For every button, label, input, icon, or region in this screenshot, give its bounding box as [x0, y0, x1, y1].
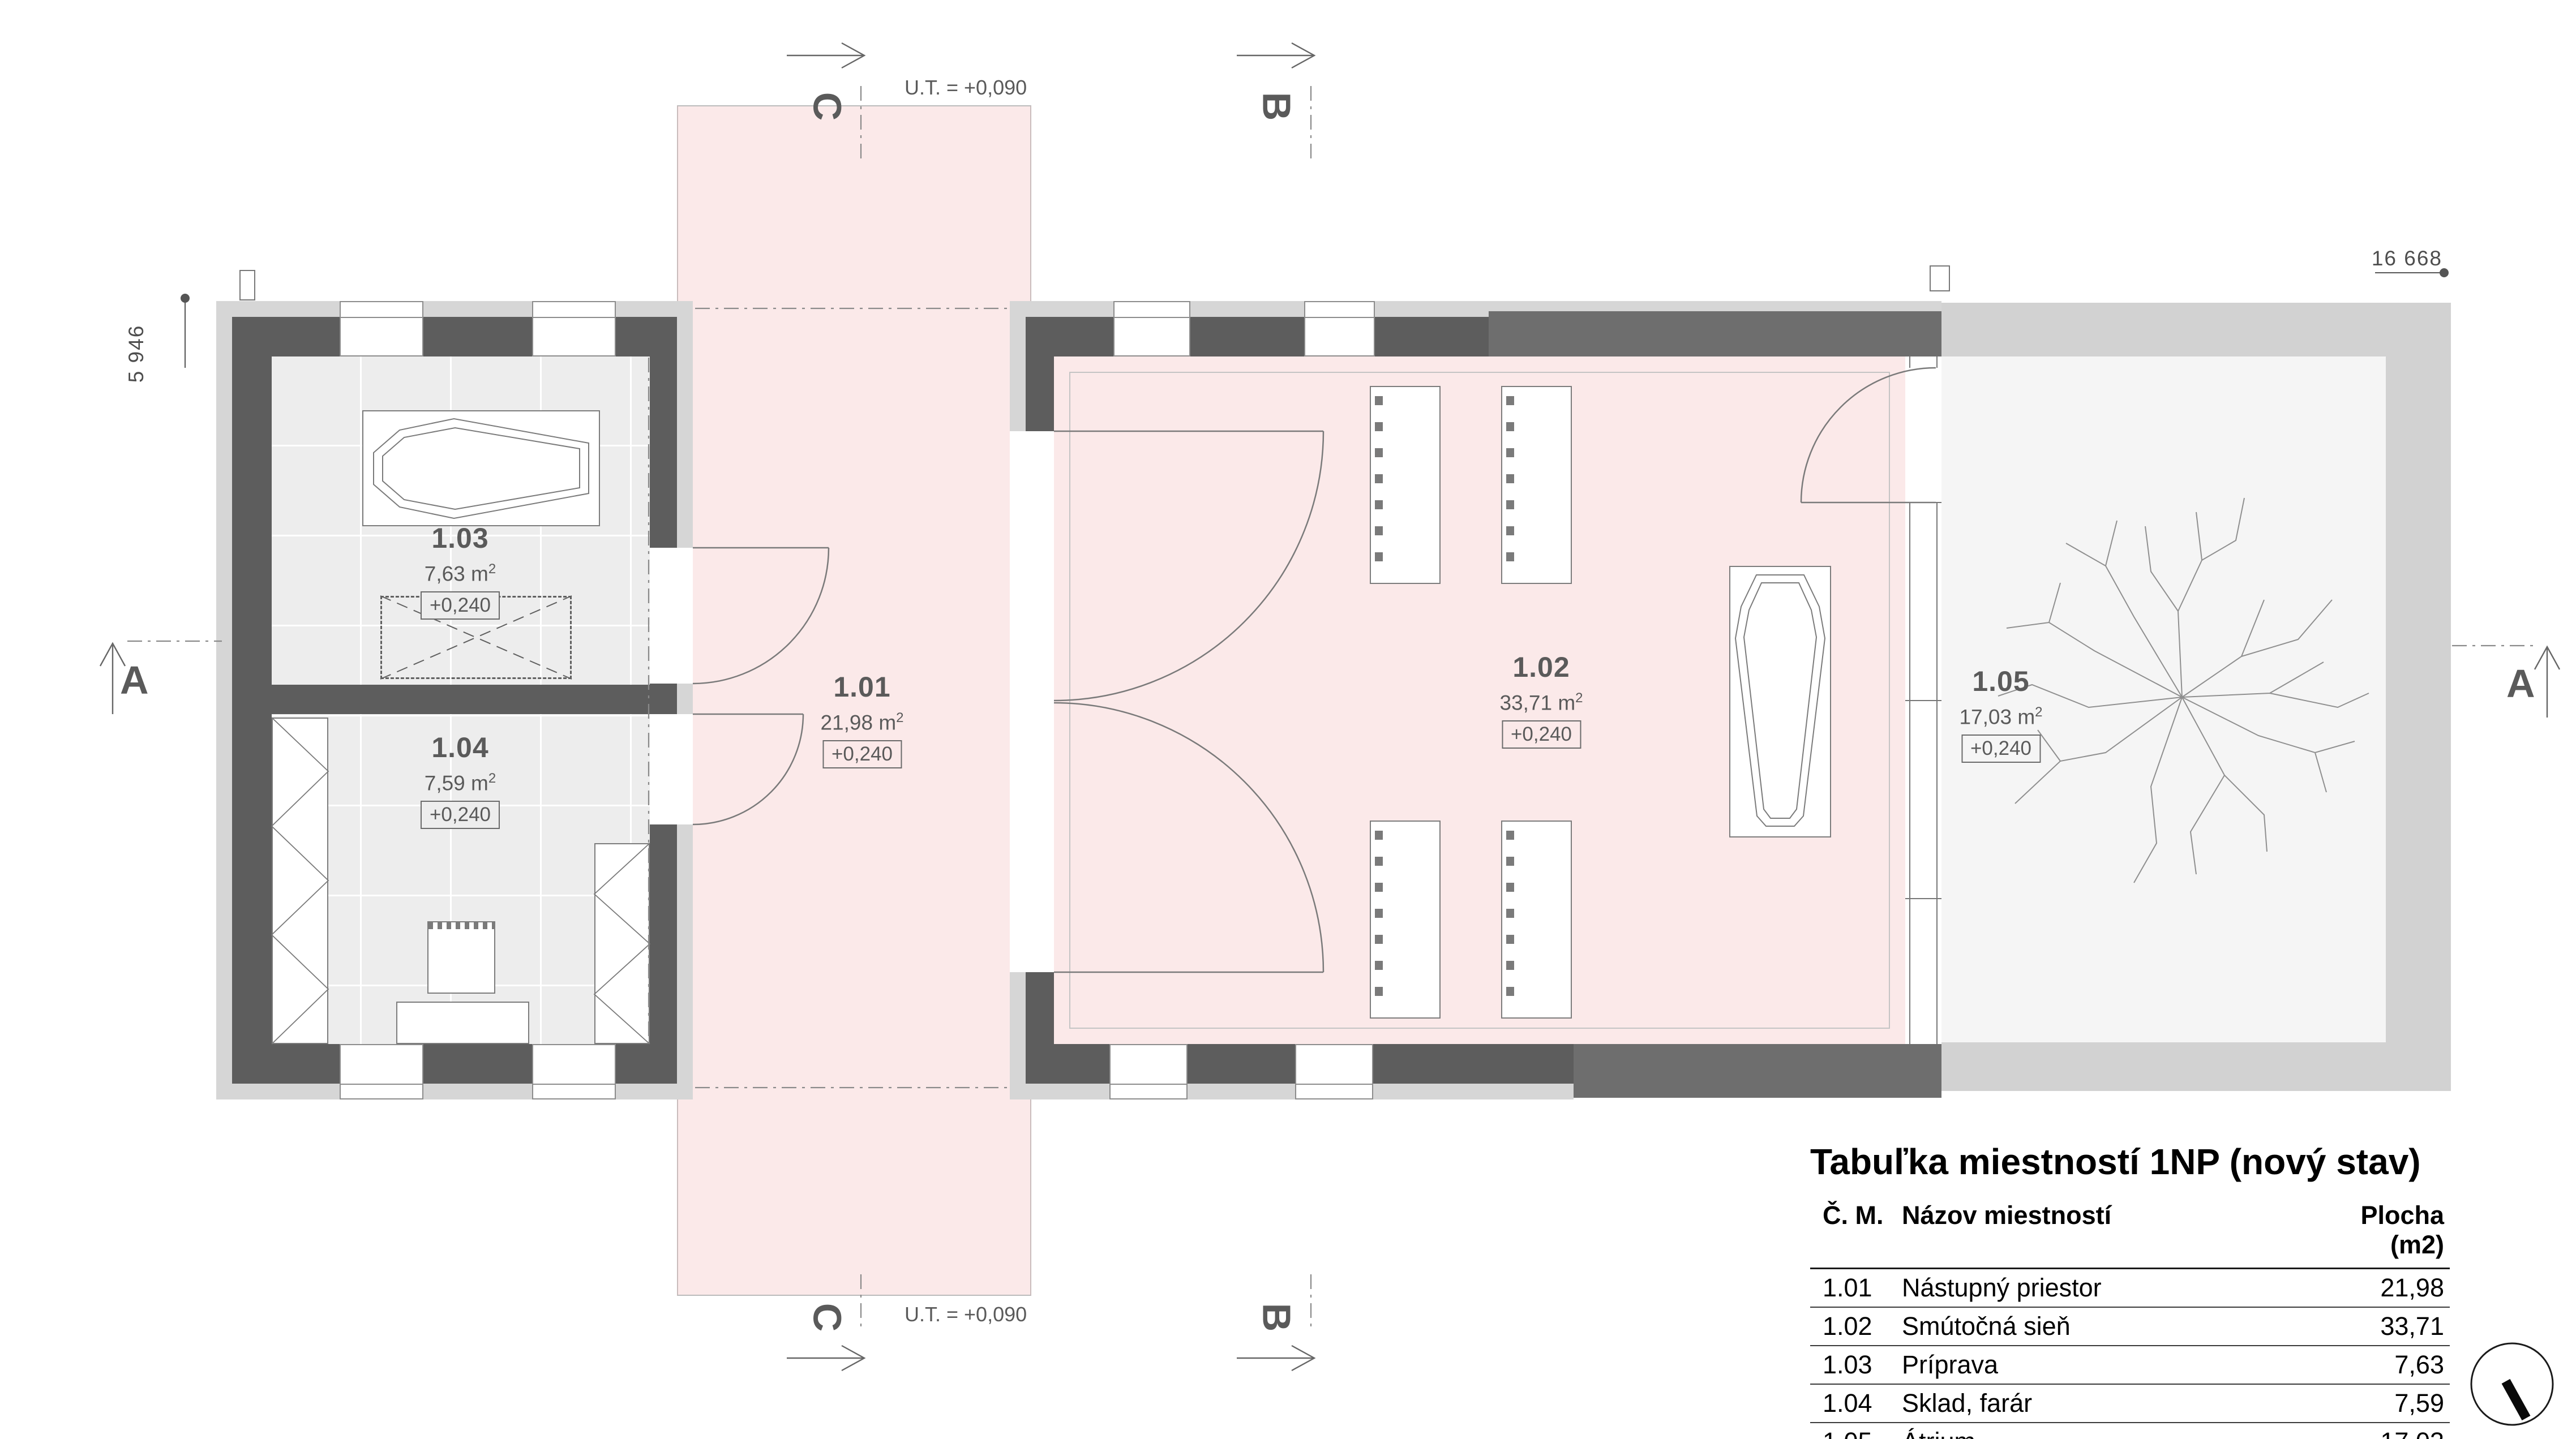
room-table: Tabuľka miestností 1NP (nový stav) Č. M.…	[1810, 1141, 2450, 1439]
room-elevation: +0,240	[1961, 734, 2041, 763]
table-row: 1.03 Príprava 7,63	[1810, 1346, 2450, 1385]
header-area: Plocha (m2)	[2314, 1201, 2450, 1260]
room-area: 7,63 m2	[421, 561, 500, 586]
north-arrow-icon	[2471, 1343, 2553, 1425]
room-number: 1.02	[1499, 651, 1583, 684]
dimension-lines	[181, 269, 2448, 368]
room-label-1-01: 1.01 21,98 m2 +0,240	[820, 671, 903, 768]
coffin-103	[374, 419, 589, 518]
section-marker-b-bottom: B	[1254, 1303, 1299, 1332]
room-area: 21,98 m2	[820, 710, 903, 734]
section-marker-c-bottom: C	[804, 1303, 850, 1332]
room-table-title: Tabuľka miestností 1NP (nový stav)	[1810, 1141, 2450, 1183]
hall-ceiling-outline	[1070, 372, 1889, 1028]
table-row: 1.02 Smútočná sieň 33,71	[1810, 1308, 2450, 1346]
section-marker-b-top: B	[1254, 92, 1299, 121]
ut-level-label-top: U.T. = +0,090	[905, 76, 1027, 100]
dimension-left: 5 946	[125, 311, 148, 396]
section-marker-a-left: A	[120, 658, 149, 703]
room-elevation: +0,240	[421, 801, 500, 829]
header-name: Názov miestností	[1895, 1201, 2314, 1260]
room-area: 17,03 m2	[1959, 705, 2042, 729]
glazing-lines	[1905, 356, 1941, 1044]
section-marker-a-right: A	[2506, 661, 2535, 706]
room-elevation: +0,240	[822, 740, 902, 768]
room-area: 7,59 m2	[421, 771, 500, 795]
header-number: Č. M.	[1810, 1201, 1895, 1260]
room-number: 1.05	[1959, 665, 2042, 698]
room-elevation: +0,240	[1502, 720, 1581, 749]
room-label-1-03: 1.03 7,63 m2 +0,240	[421, 522, 500, 620]
table-row: 1.04 Sklad, farár 7,59	[1810, 1385, 2450, 1423]
room-elevation: +0,240	[421, 591, 500, 620]
room-area: 33,71 m2	[1499, 690, 1583, 715]
table-row: 1.05 Átrium 17,03	[1810, 1423, 2450, 1439]
ut-level-label-bottom: U.T. = +0,090	[905, 1303, 1027, 1326]
section-marker-c-top: C	[804, 92, 850, 121]
room-label-1-05: 1.05 17,03 m2 +0,240	[1959, 665, 2042, 763]
coffin-102	[1735, 575, 1825, 826]
room-label-1-02: 1.02 33,71 m2 +0,240	[1499, 651, 1583, 749]
table-row: 1.01 Nástupný priestor 21,98	[1810, 1269, 2450, 1308]
room-table-header: Č. M. Názov miestností Plocha (m2)	[1810, 1197, 2450, 1269]
room-number: 1.01	[820, 671, 903, 703]
floor-plan-drawing: 1.01 21,98 m2 +0,240 1.02 33,71 m2 +0,24…	[0, 0, 2576, 1439]
dimension-top-right: 16 668	[2349, 247, 2442, 270]
tree-icon	[1998, 498, 2369, 883]
room-label-1-04: 1.04 7,59 m2 +0,240	[421, 731, 500, 829]
corner-ticks	[240, 266, 1949, 300]
room-number: 1.04	[421, 731, 500, 764]
room-number: 1.03	[421, 522, 500, 555]
door-swings	[693, 368, 1936, 972]
seat-ticks	[428, 396, 1510, 1011]
